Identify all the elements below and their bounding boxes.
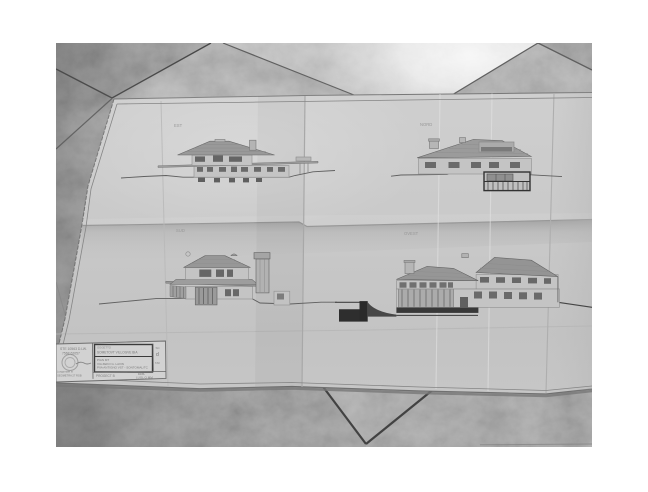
svg-text:Lungomare m: Lungomare m xyxy=(57,370,73,374)
svg-text:NORD: NORD xyxy=(420,122,432,127)
svg-text:OVEST: OVEST xyxy=(404,231,419,236)
svg-text:EST: EST xyxy=(174,123,183,128)
svg-text:PROGECT B: PROGECT B xyxy=(96,374,115,378)
svg-text:LUGL O MM: LUGL O MM xyxy=(136,376,153,380)
svg-text:SOMETOVT VILLOGVE BIA: SOMETOVT VILLOGVE BIA xyxy=(97,351,138,355)
svg-text:GEOMETRA 27 RGB: GEOMETRA 27 RGB xyxy=(57,374,82,378)
svg-text:PVA ANT/GNO VST - SONTOMAL/TC: PVA ANT/GNO VST - SONTOMAL/TC xyxy=(97,366,149,370)
svg-text:STE 10563 D.LW.: STE 10563 D.LW. xyxy=(60,347,87,351)
svg-text:OGGETTO: OGGETTO xyxy=(97,346,112,350)
svg-text:SUD: SUD xyxy=(176,228,185,233)
svg-text:TAV: TAV xyxy=(155,361,160,365)
svg-text:7568 62057: 7568 62057 xyxy=(62,351,80,355)
svg-text:d: d xyxy=(156,352,159,358)
